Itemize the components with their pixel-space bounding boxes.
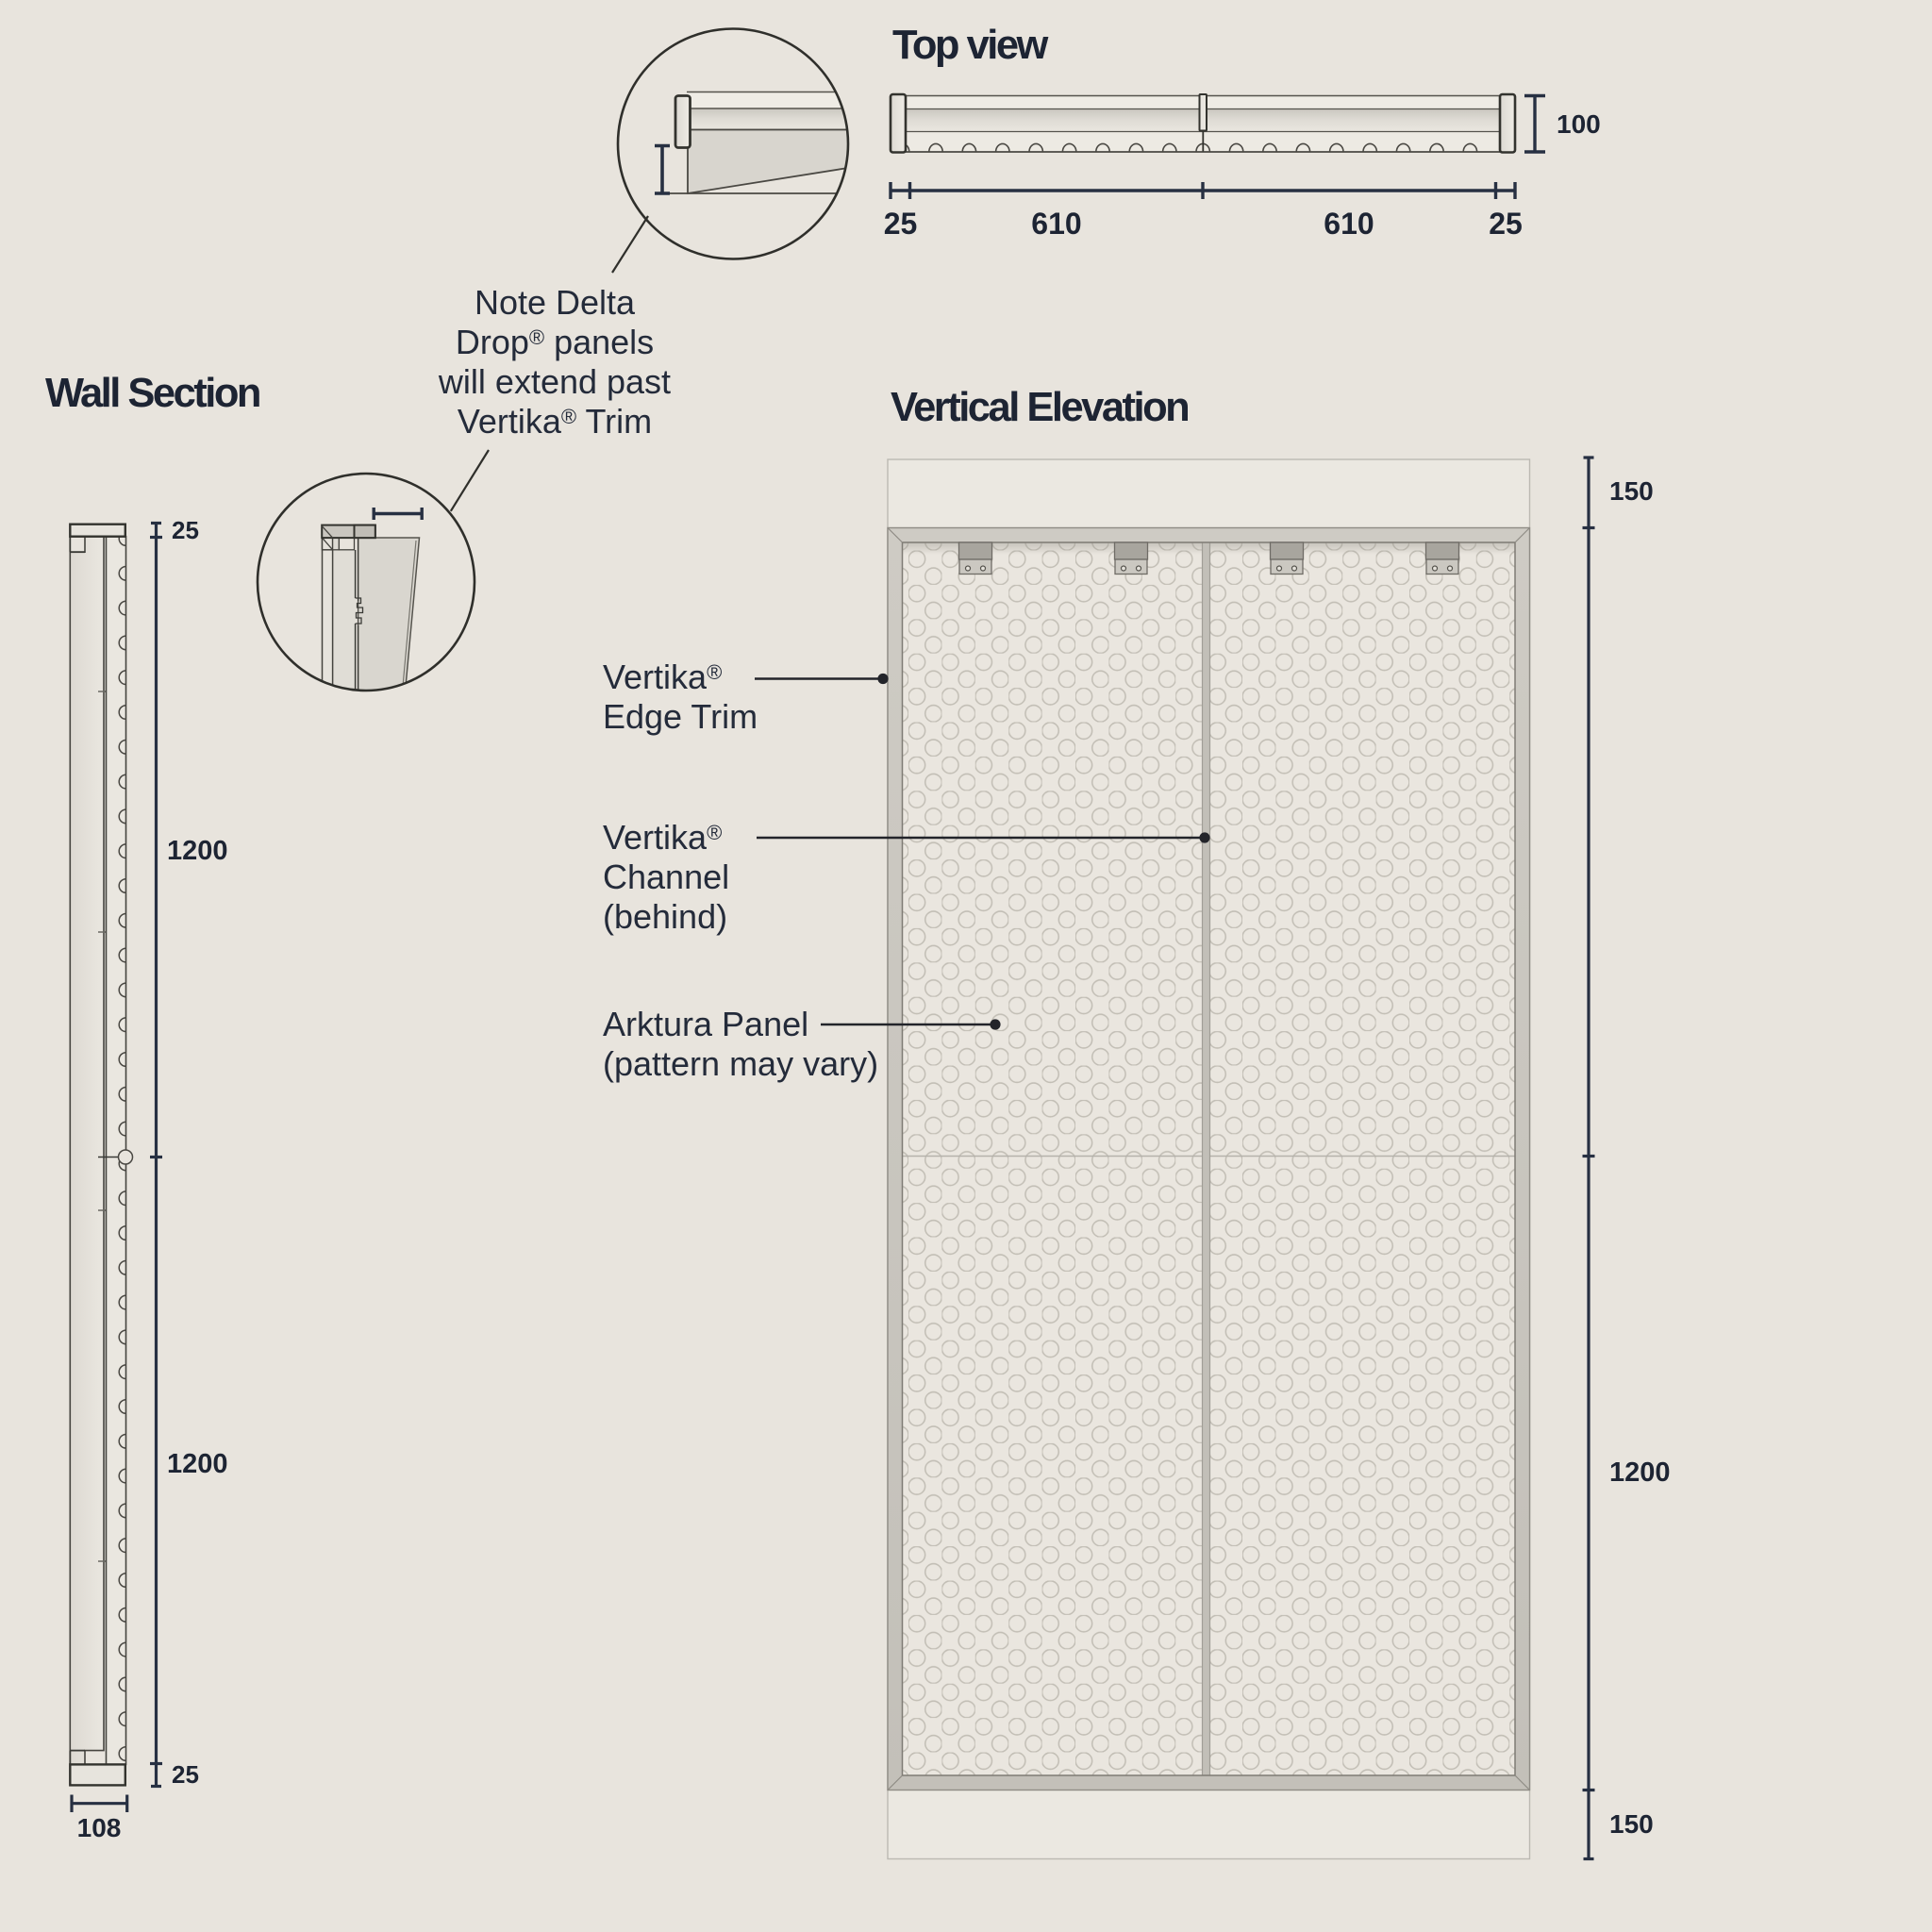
svg-text:(behind): (behind) xyxy=(603,897,727,936)
svg-text:Drop®​ panels: Drop®​ panels xyxy=(456,323,654,361)
svg-text:Vertika®​: Vertika®​ xyxy=(603,818,722,857)
svg-text:25: 25 xyxy=(1489,207,1523,241)
svg-text:1200: 1200 xyxy=(1609,1457,1671,1488)
svg-text:25: 25 xyxy=(172,1760,199,1789)
svg-text:1200: 1200 xyxy=(167,836,228,866)
svg-text:108: 108 xyxy=(77,1813,122,1842)
svg-text:1200: 1200 xyxy=(167,1449,228,1479)
svg-text:100: 100 xyxy=(1557,109,1601,139)
svg-text:Vertika®​: Vertika®​ xyxy=(603,658,722,696)
svg-text:610: 610 xyxy=(1031,207,1081,241)
svg-text:Vertical Elevation: Vertical Elevation xyxy=(891,385,1188,430)
svg-text:Note Delta: Note Delta xyxy=(475,283,636,322)
svg-text:Edge Trim: Edge Trim xyxy=(603,697,758,736)
svg-text:25: 25 xyxy=(884,207,918,241)
svg-text:(pattern may vary): (pattern may vary) xyxy=(603,1044,878,1083)
svg-text:will extend past: will extend past xyxy=(438,362,671,401)
svg-text:Channel: Channel xyxy=(603,858,729,896)
svg-text:Wall Section: Wall Section xyxy=(45,371,259,416)
svg-text:Vertika®​ Trim: Vertika®​ Trim xyxy=(458,402,652,441)
svg-text:610: 610 xyxy=(1324,207,1374,241)
svg-text:Top view: Top view xyxy=(892,23,1049,68)
svg-text:150: 150 xyxy=(1609,476,1654,506)
svg-text:Arktura Panel: Arktura Panel xyxy=(603,1005,808,1043)
svg-text:25: 25 xyxy=(172,516,199,544)
svg-text:150: 150 xyxy=(1609,1809,1654,1839)
